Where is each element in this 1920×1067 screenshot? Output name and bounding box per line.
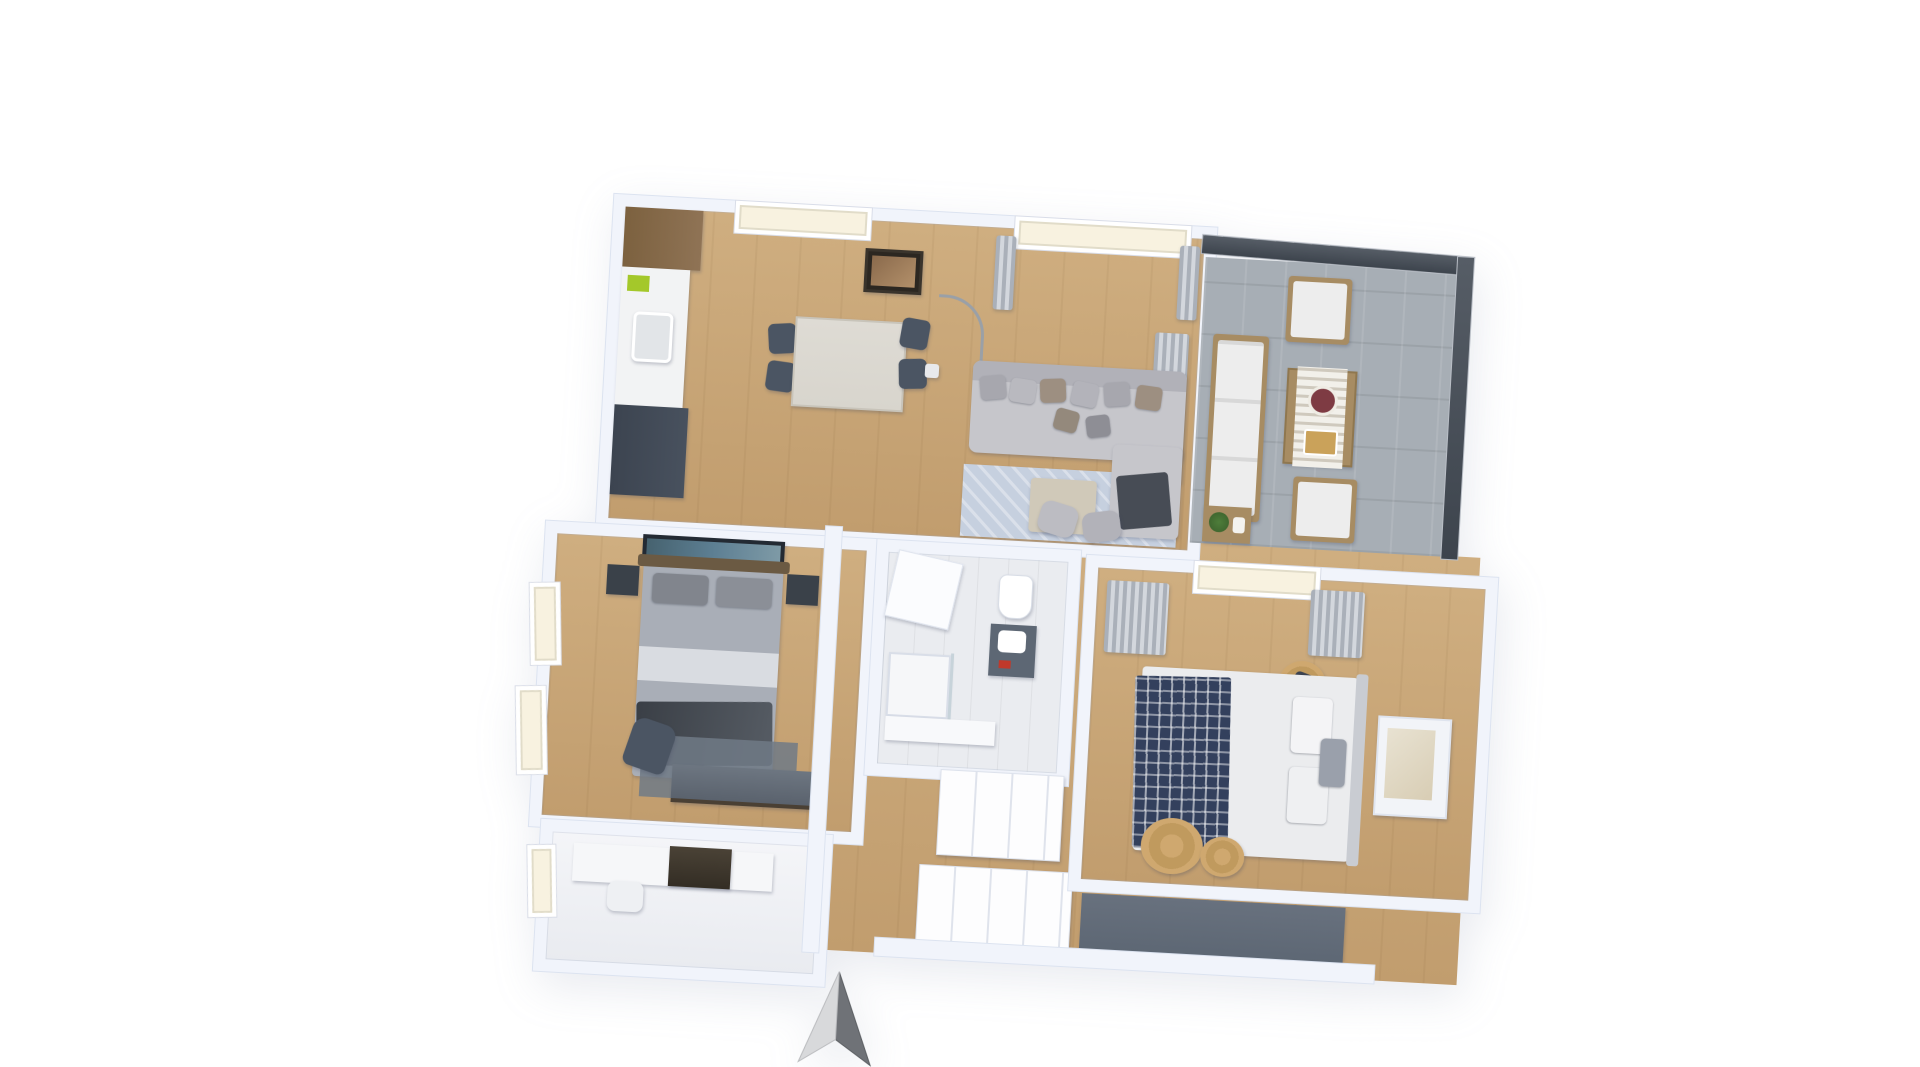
bed-pillow: [715, 576, 773, 609]
bed2-accent-pillow: [1318, 738, 1347, 787]
kitchen-cutting-board: [627, 275, 650, 292]
shower-tray: [886, 652, 951, 719]
living-curtain-right: [1176, 246, 1200, 321]
bedroom1-window-lower: [516, 686, 547, 774]
potted-plant: [1208, 512, 1229, 533]
sofa-pillow: [1134, 384, 1163, 411]
utility-appliance: [668, 846, 732, 889]
bedroom1-window-upper: [530, 582, 561, 664]
dining-chair: [899, 359, 927, 389]
outdoor-coffee-table: [1282, 368, 1357, 468]
kitchen-dining-window: [734, 201, 872, 241]
utility-stool: [606, 881, 644, 913]
kitchen-sink: [631, 311, 674, 363]
bathroom-vanity: [988, 624, 1037, 678]
living-kitchen-dining-room: [596, 194, 1218, 563]
sofa-pillow: [1052, 407, 1081, 435]
carafe: [1232, 517, 1245, 534]
apartment-3d-floor-plan: [495, 180, 1553, 1067]
sofa-pillow: [1070, 380, 1100, 409]
kitchen-tall-cabinet: [622, 207, 703, 271]
bedroom-2: [1068, 555, 1498, 913]
bed2-headboard: [1346, 674, 1369, 866]
nightstand-left: [606, 564, 640, 596]
sofa-pillow: [979, 374, 1007, 400]
outdoor-armchair: [1290, 476, 1357, 543]
bathroom-cabinet: [884, 716, 995, 746]
nightstand-right: [786, 574, 820, 606]
console-glass-top: [1384, 728, 1436, 801]
floor-plan-render-canvas: [0, 0, 1920, 1067]
balcony-sliding-door: [1193, 561, 1321, 600]
outdoor-sofa: [1203, 334, 1269, 523]
balcony-side-table: [1202, 505, 1252, 544]
north-arrow-icon: [796, 968, 877, 1067]
vanity-red-accent: [998, 660, 1010, 669]
bedroom2-console: [1373, 715, 1452, 819]
wall-picture-image: [871, 255, 917, 287]
dining-chair: [899, 317, 932, 351]
armchair-cushion: [1295, 482, 1352, 539]
food-tray: [1303, 429, 1338, 457]
sofa-pillow: [1103, 381, 1131, 407]
utility-room: [533, 819, 833, 987]
bathroom: [864, 539, 1081, 786]
bedroom2-curtain: [1308, 589, 1366, 658]
lounge-cushion: [1290, 281, 1347, 340]
vanity-sink: [997, 630, 1026, 654]
arc-lamp-base: [925, 364, 940, 379]
bathroom-door: [884, 549, 964, 630]
utility-window: [527, 845, 556, 917]
entry-wardrobe: [915, 864, 1073, 950]
outdoor-sofa-cushions: [1208, 340, 1264, 516]
desk: [670, 764, 812, 810]
living-armchair: [1081, 509, 1122, 543]
sofa-pillow: [1008, 377, 1038, 405]
closet-curtain: [1104, 580, 1170, 655]
outdoor-lounge-chair: [1285, 276, 1353, 345]
dining-chair: [768, 323, 797, 354]
hall-closet: [936, 769, 1065, 862]
sofa-pillow: [1085, 414, 1111, 439]
bed-sheet-fold: [637, 646, 779, 688]
living-room-window: [1014, 216, 1192, 258]
living-curtain-left: [992, 235, 1016, 310]
wall-picture: [863, 248, 923, 295]
chaise-throw-blanket: [1116, 472, 1172, 530]
bed-pillow: [652, 573, 710, 606]
dining-table: [791, 316, 908, 412]
kitchen-base-cabinets: [610, 404, 689, 498]
toilet: [997, 574, 1033, 620]
sofa-pillow: [1040, 378, 1067, 403]
